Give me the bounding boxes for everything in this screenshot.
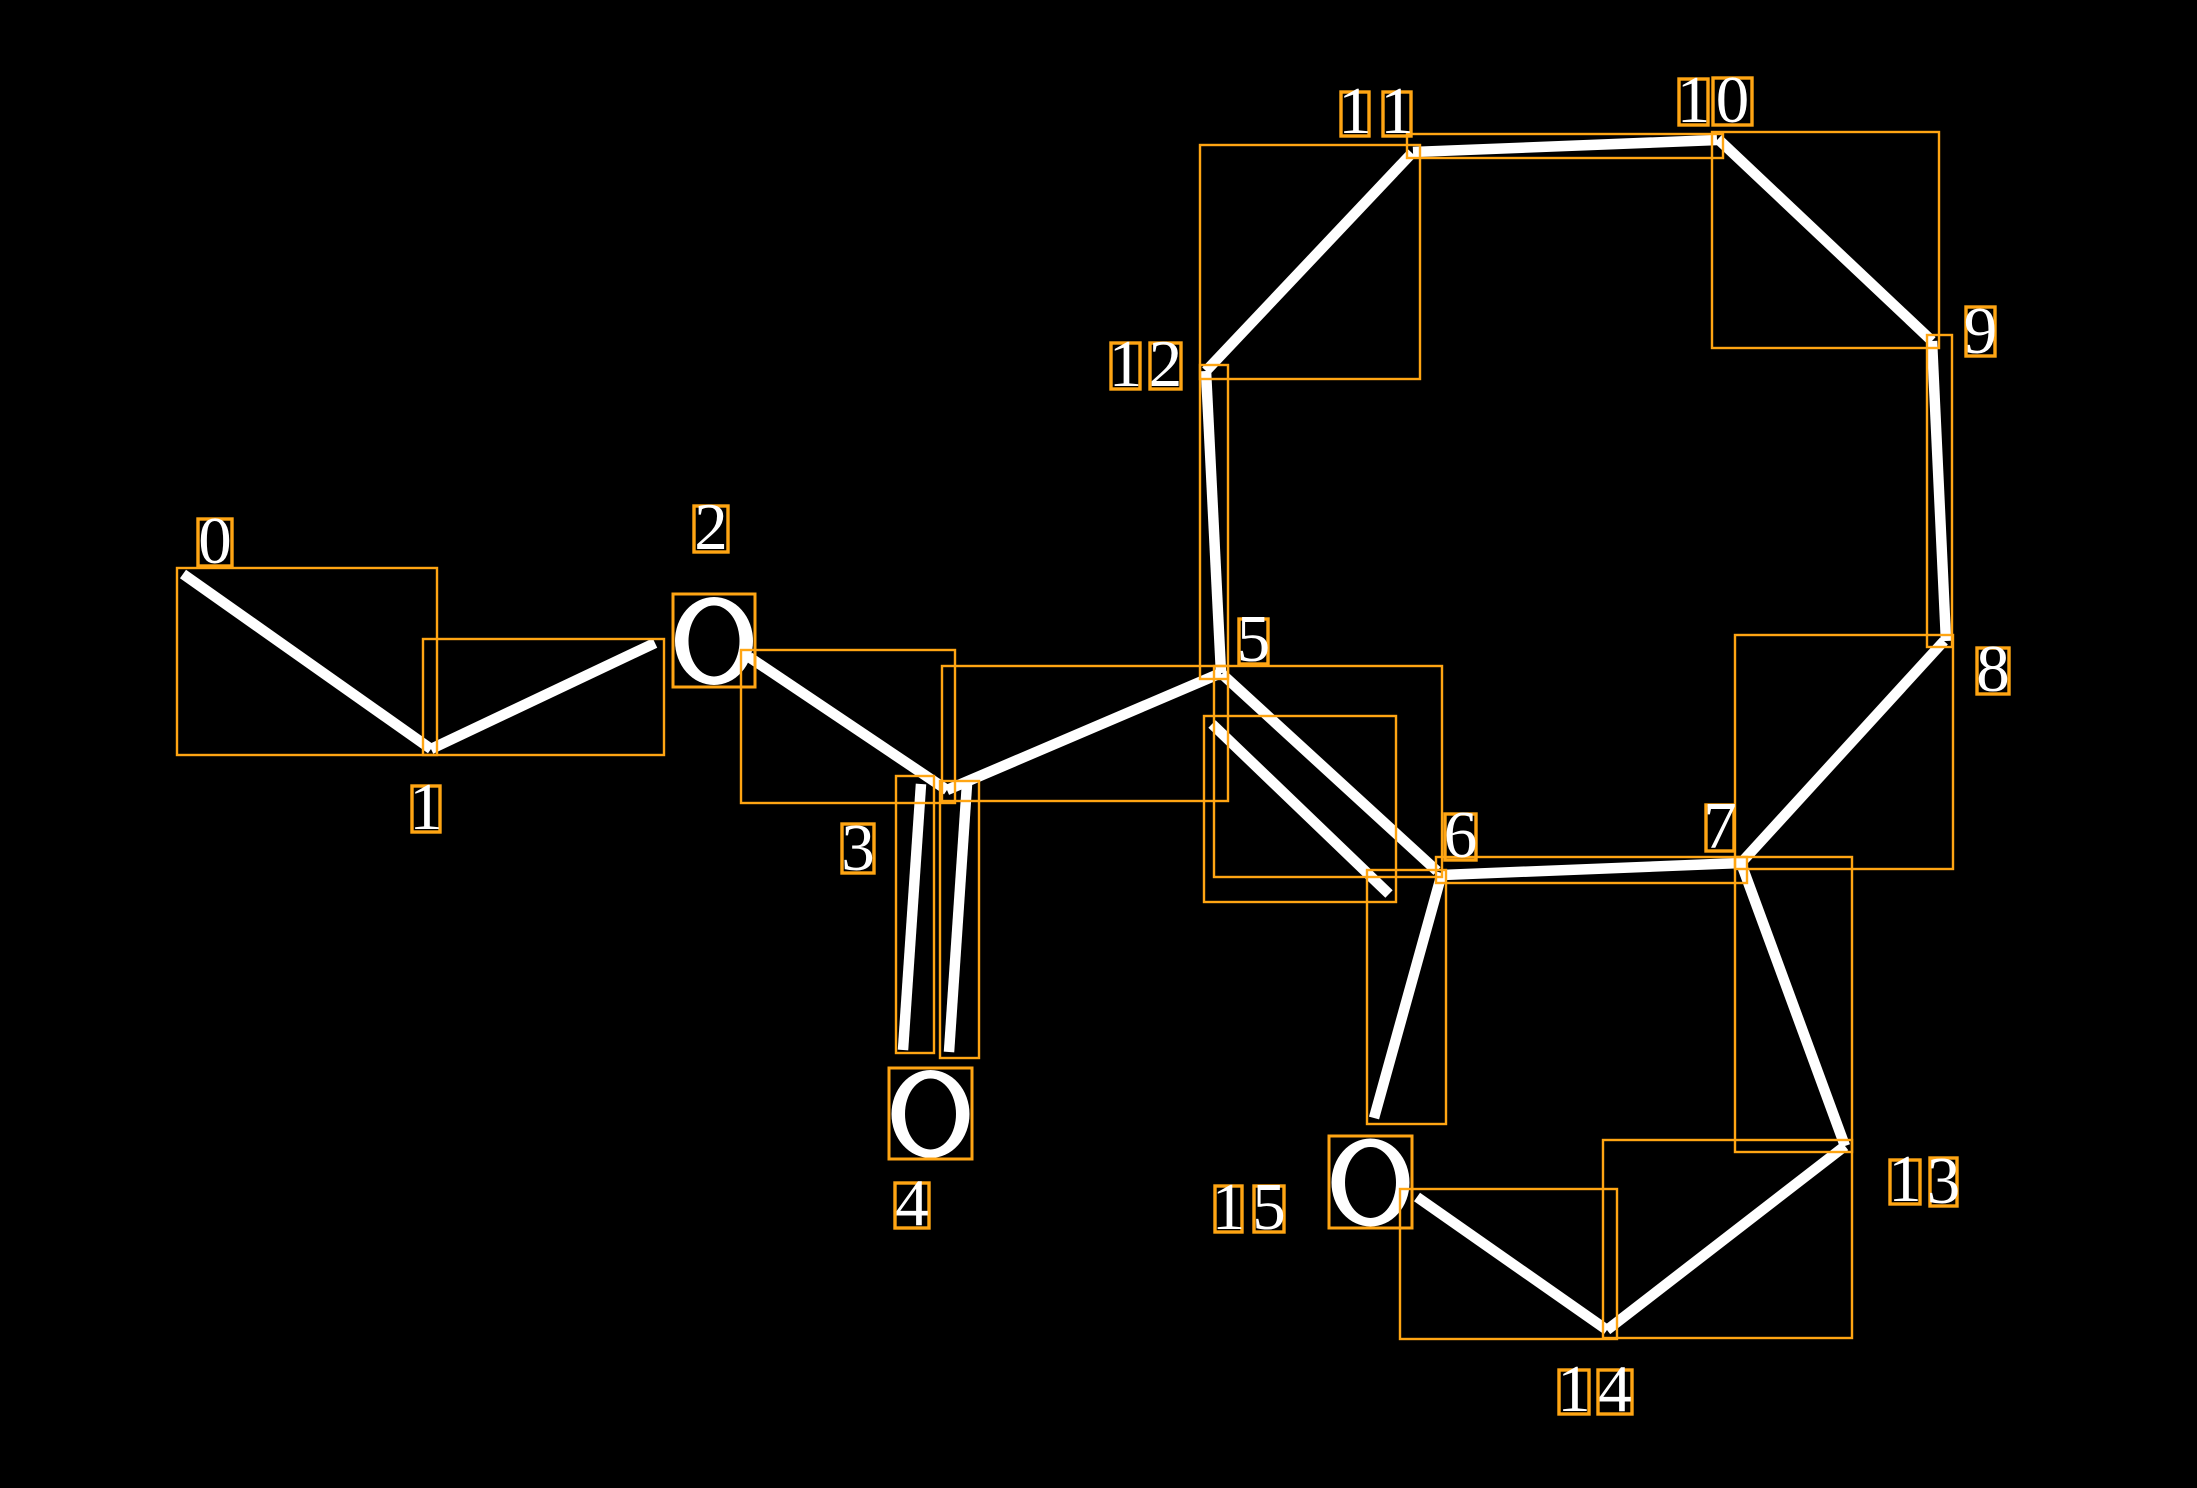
svg-text:0: 0	[198, 504, 232, 578]
svg-text:2: 2	[1149, 327, 1183, 401]
svg-text:4: 4	[895, 1166, 929, 1240]
svg-text:1: 1	[1557, 1352, 1591, 1426]
svg-text:1: 1	[1212, 1170, 1246, 1244]
svg-text:0: 0	[1716, 63, 1750, 137]
svg-text:1: 1	[1888, 1142, 1922, 1216]
svg-text:6: 6	[1444, 798, 1478, 872]
svg-text:2: 2	[694, 490, 728, 564]
svg-text:1: 1	[1677, 63, 1711, 137]
svg-text:8: 8	[1976, 632, 2010, 706]
svg-text:3: 3	[841, 811, 875, 885]
svg-text:1: 1	[1109, 327, 1143, 401]
svg-text:1: 1	[1380, 74, 1414, 148]
svg-text:7: 7	[1703, 789, 1737, 863]
svg-text:1: 1	[1338, 74, 1372, 148]
svg-text:5: 5	[1237, 602, 1271, 676]
svg-text:3: 3	[1927, 1144, 1961, 1218]
svg-text:9: 9	[1964, 294, 1998, 368]
svg-text:4: 4	[1598, 1352, 1632, 1426]
svg-text:1: 1	[409, 770, 443, 844]
svg-text:5: 5	[1252, 1170, 1286, 1244]
